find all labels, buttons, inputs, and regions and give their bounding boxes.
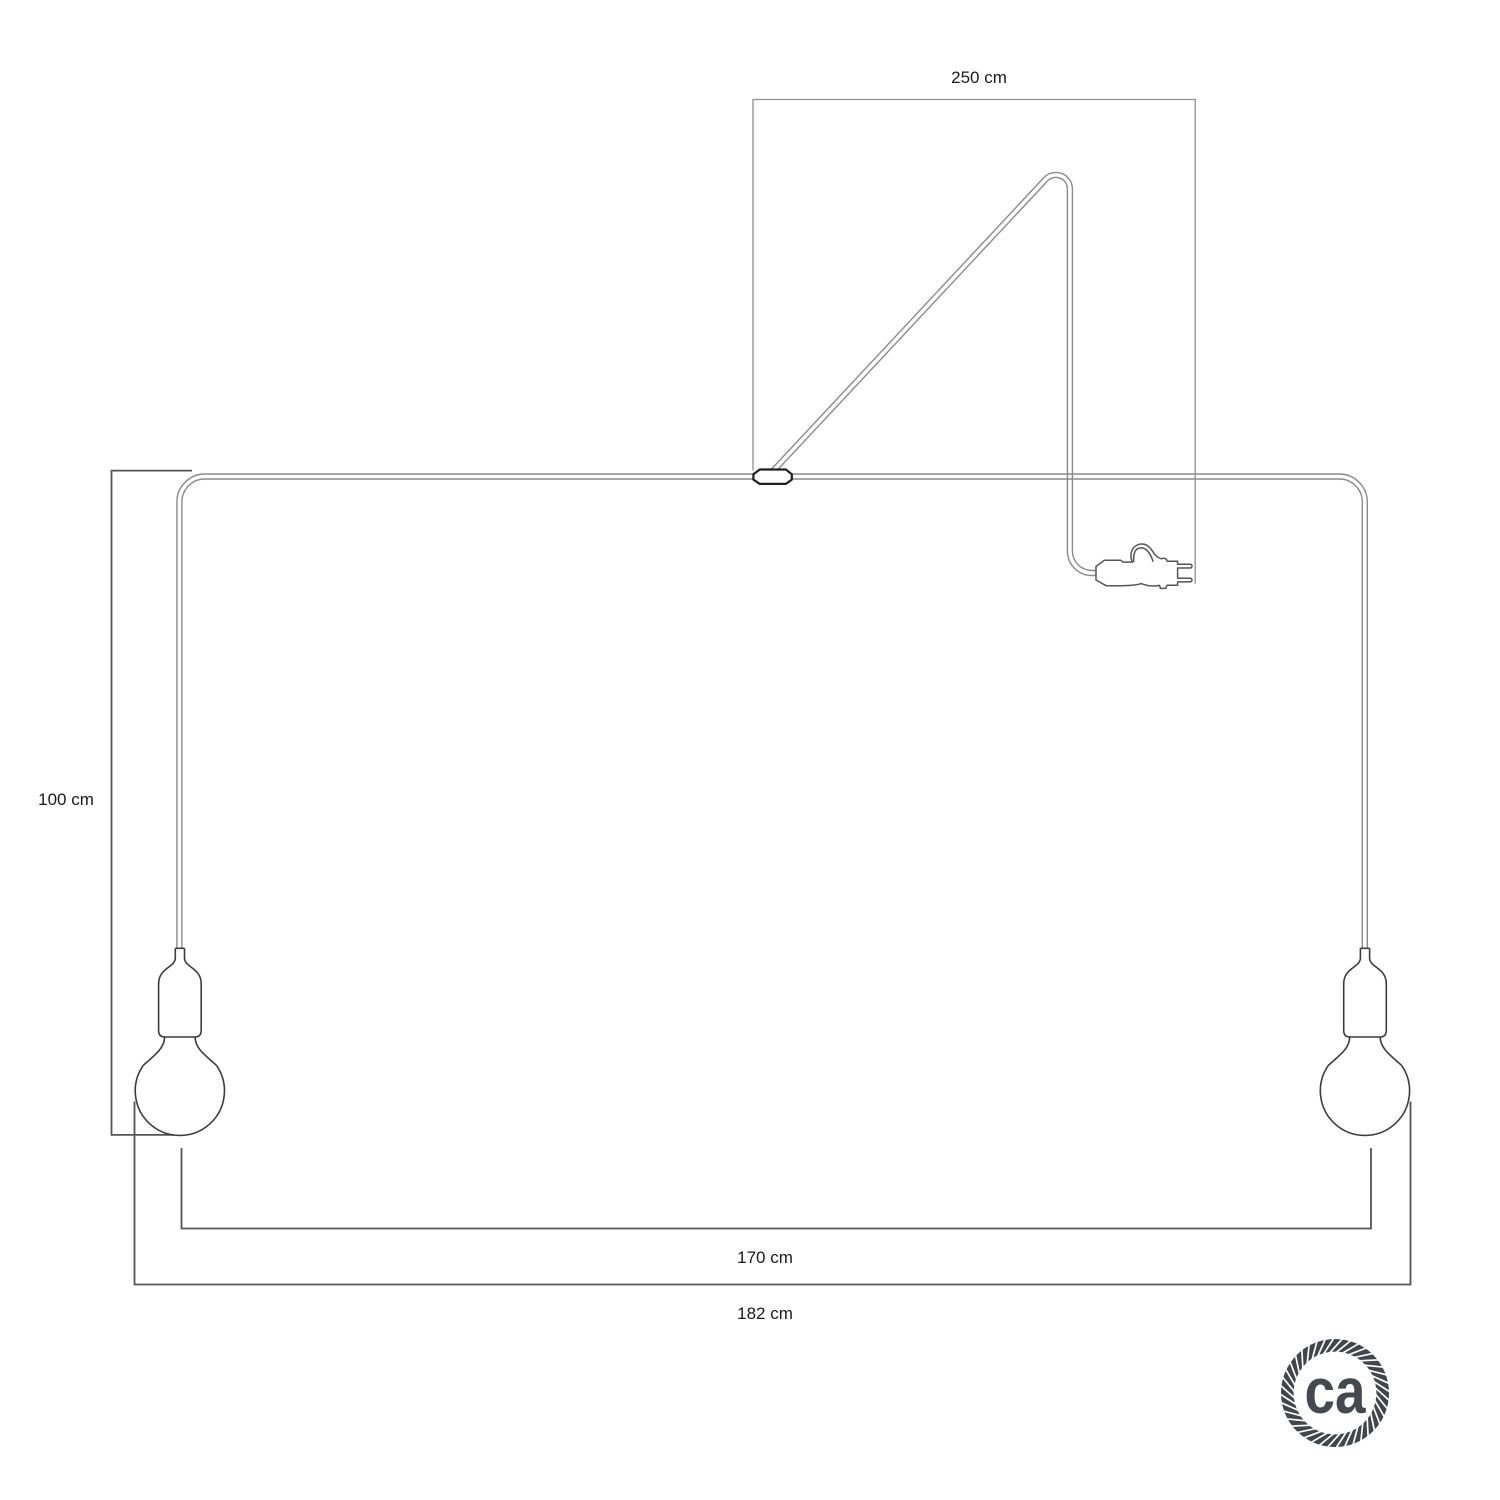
svg-text:ca: ca xyxy=(1305,1355,1366,1427)
